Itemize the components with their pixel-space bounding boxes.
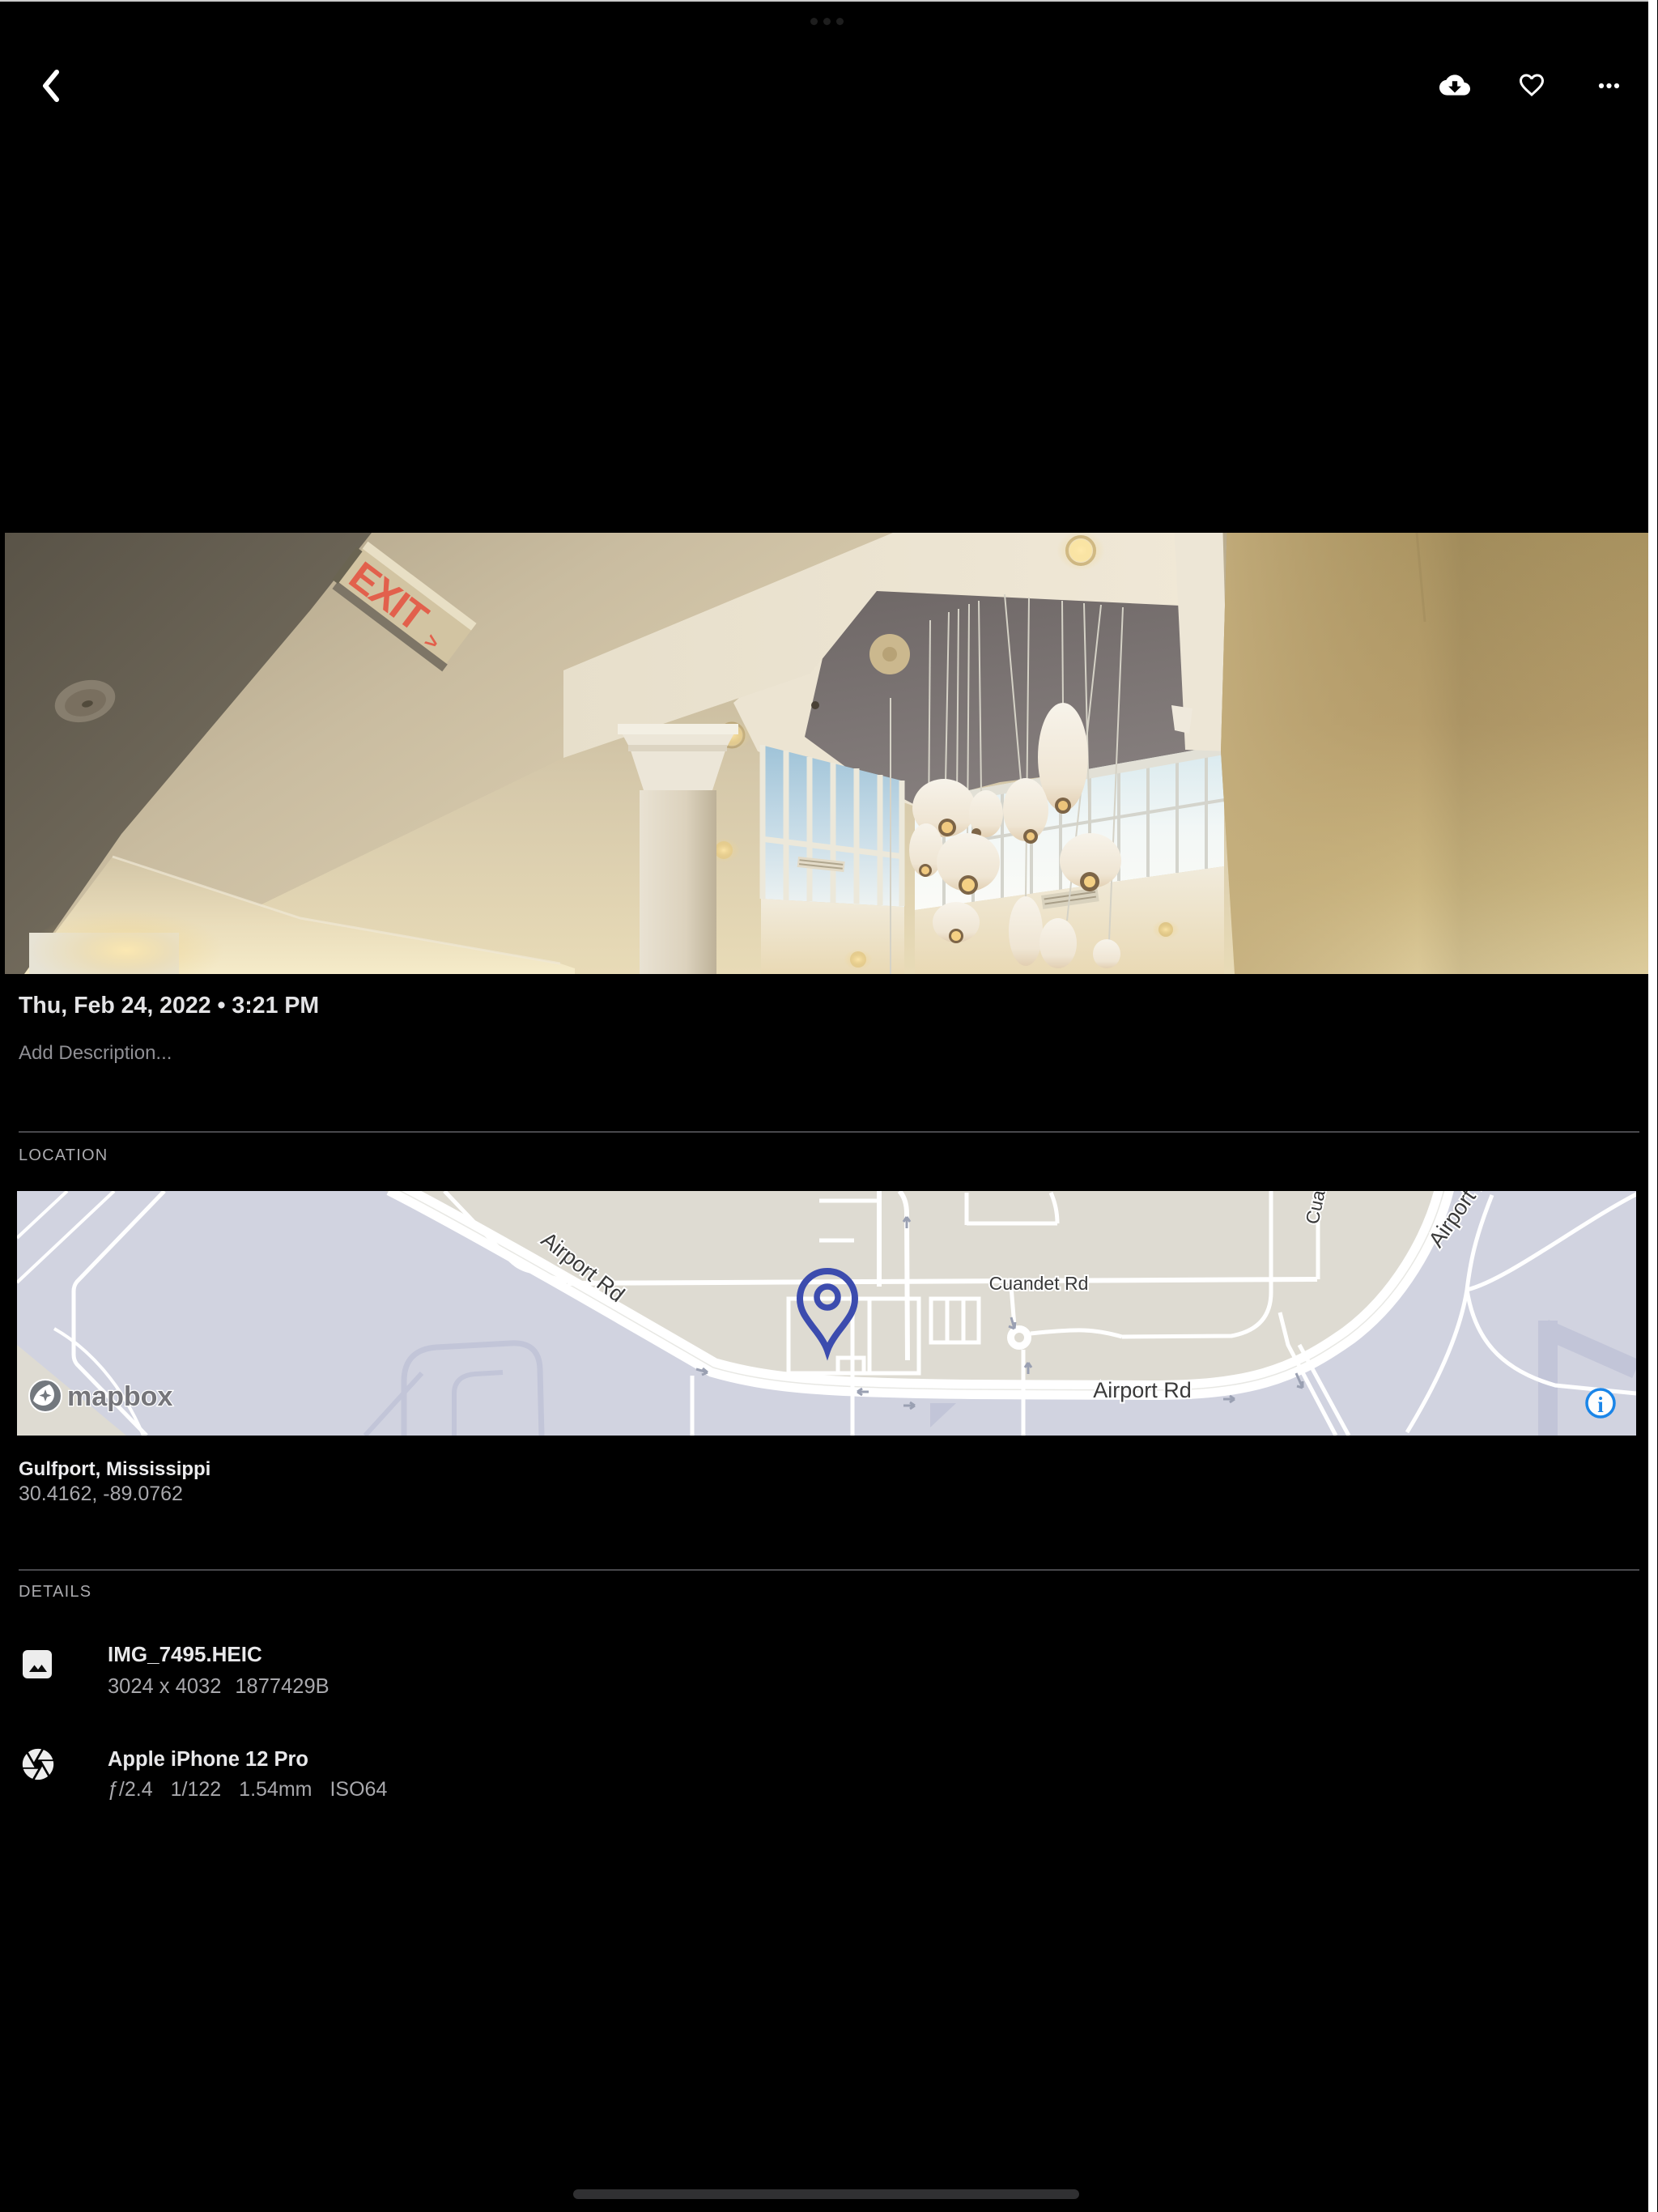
- svg-text:mapbox: mapbox: [67, 1381, 172, 1412]
- svg-text:Airport Rd: Airport Rd: [1093, 1378, 1192, 1402]
- svg-text:i: i: [1597, 1393, 1604, 1417]
- svg-text:Cuandet Rd: Cuandet Rd: [989, 1273, 1089, 1294]
